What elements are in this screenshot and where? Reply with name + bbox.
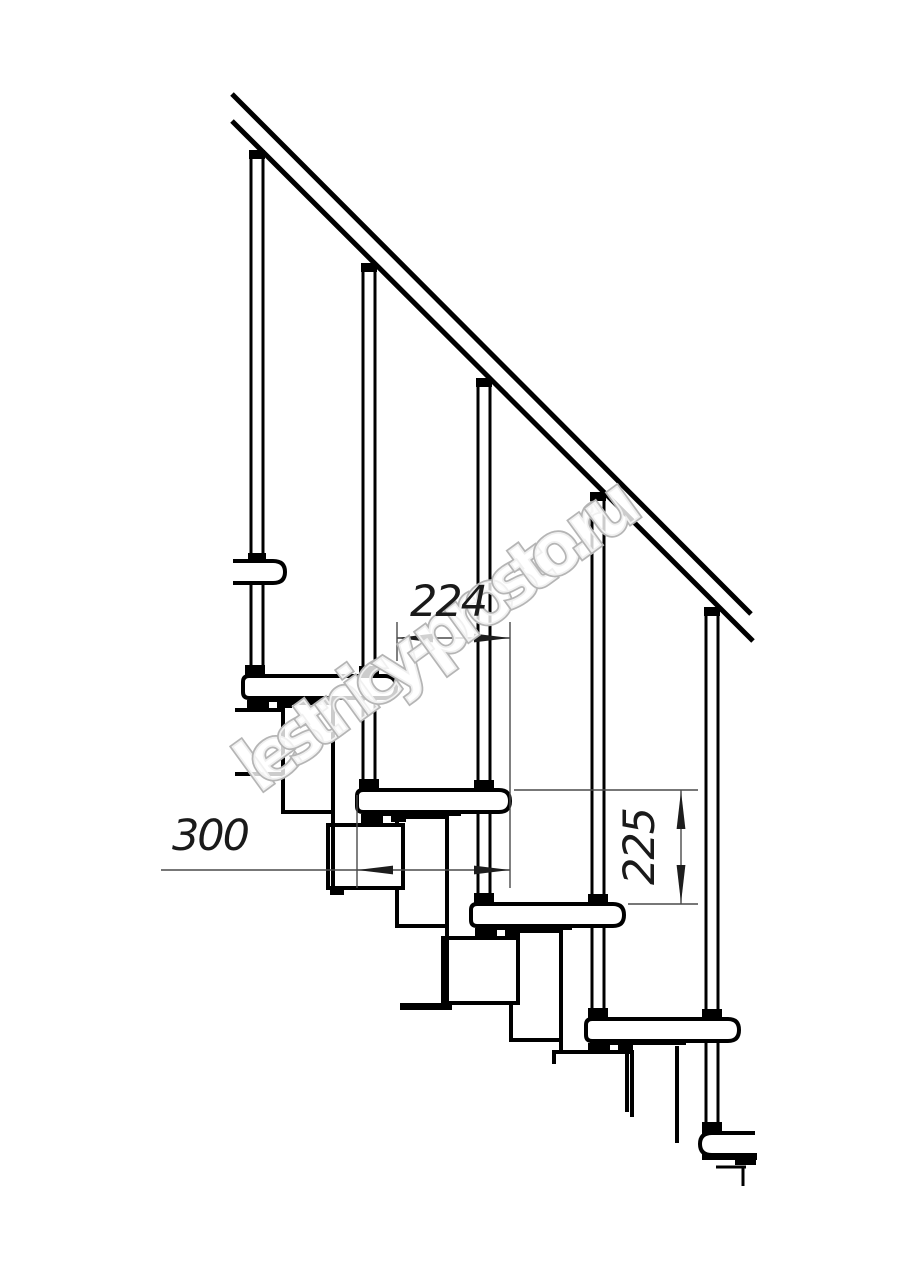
base-collar-4 — [588, 1008, 608, 1020]
arrow-up-icon — [677, 791, 686, 829]
module-square-1 — [328, 825, 403, 888]
dimension-label-step-rise: 225 — [615, 809, 665, 885]
module-column-4-partial — [627, 1046, 677, 1143]
tread-0-partial — [233, 561, 285, 583]
module-tab — [400, 1003, 452, 1010]
pass-collar-5 — [702, 1009, 722, 1020]
tread-3-tab — [505, 928, 520, 936]
tread-5-partial — [700, 1133, 755, 1155]
baluster-1 — [251, 153, 263, 676]
tread-3-tab — [475, 928, 497, 937]
baluster-4 — [592, 495, 604, 1019]
tread-5-tab — [735, 1157, 756, 1165]
baluster-5 — [706, 610, 718, 1133]
dimension-label-tread-length: 300 — [172, 811, 249, 861]
tread-4-tab — [618, 1043, 633, 1051]
pass-collar-1 — [248, 553, 266, 562]
module-square-2 — [443, 938, 518, 1003]
dimension-label-step-run: 224 — [410, 577, 486, 627]
pass-collar-4 — [588, 894, 608, 905]
tread-4-tab — [588, 1043, 610, 1052]
staircase-drawing-page: lestnicy-prosto.ru 224 300 225 — [0, 0, 914, 1280]
base-collar-5 — [702, 1122, 722, 1134]
tread-5-cut-lines — [716, 1167, 746, 1186]
watermark: lestnicy-prosto.ru — [219, 459, 655, 808]
arrow-down-icon — [677, 865, 686, 903]
tread-3 — [471, 904, 624, 926]
base-collar-2 — [359, 779, 379, 791]
tread-2 — [357, 790, 510, 812]
watermark-text: lestnicy-prosto.ru — [219, 459, 655, 808]
base-collar-1 — [245, 665, 265, 677]
module-square-3-partial — [554, 1052, 632, 1117]
tread-2-tab — [361, 814, 383, 823]
tread-2-tab — [391, 814, 406, 822]
pass-collar-3 — [474, 780, 494, 791]
module-tab — [330, 887, 344, 895]
arrow-right-icon — [474, 866, 510, 875]
base-collar-3 — [474, 893, 494, 905]
tread-4 — [586, 1019, 739, 1041]
staircase-technical-drawing: lestnicy-prosto.ru 224 300 225 — [0, 0, 914, 1280]
